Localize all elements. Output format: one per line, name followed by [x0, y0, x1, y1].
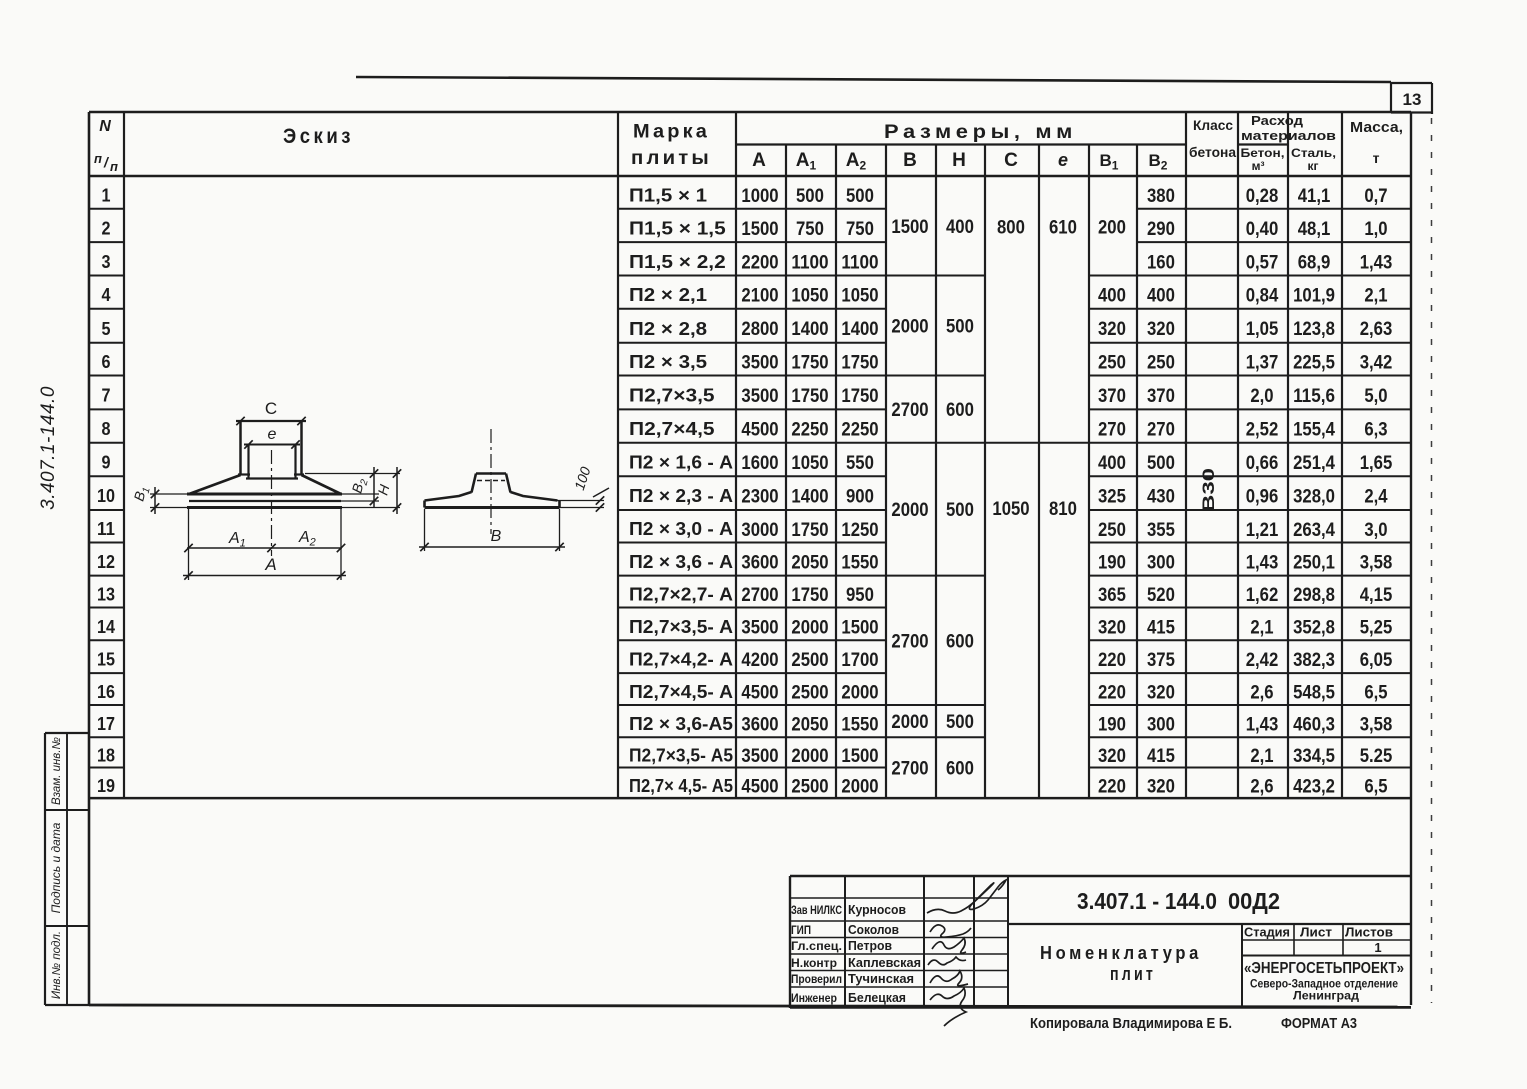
svg-text:550: 550: [846, 453, 874, 474]
svg-text:П1,5 × 1: П1,5 × 1: [629, 185, 707, 205]
svg-text:Соколов: Соколов: [848, 923, 899, 937]
svg-text:220: 220: [1098, 683, 1126, 704]
svg-text:400: 400: [1098, 286, 1126, 307]
svg-text:13: 13: [1403, 90, 1422, 109]
svg-text:600: 600: [946, 631, 974, 652]
svg-text:200: 200: [1098, 217, 1126, 238]
svg-text:950: 950: [846, 585, 874, 606]
svg-text:В: В: [903, 150, 917, 171]
svg-text:Подпись и дата: Подпись и дата: [49, 822, 63, 913]
svg-text:Зав НИЛКС: Зав НИЛКС: [791, 905, 842, 917]
svg-text:1,05: 1,05: [1246, 319, 1279, 340]
svg-text:400: 400: [946, 217, 974, 238]
svg-text:Копировала Владимирова Е Б.: Копировала Владимирова Е Б.: [1030, 1016, 1232, 1032]
svg-text:П2 × 3,0 - А: П2 × 3,0 - А: [629, 519, 733, 539]
svg-text:6,5: 6,5: [1364, 683, 1388, 704]
svg-text:1550: 1550: [841, 715, 878, 736]
svg-text:1050: 1050: [992, 499, 1029, 520]
svg-text:0,66: 0,66: [1246, 453, 1279, 474]
svg-text:400: 400: [1098, 453, 1126, 474]
svg-text:Взам. инв.№: Взам. инв.№: [51, 736, 63, 804]
svg-text:380: 380: [1147, 186, 1175, 207]
svg-text:2100: 2100: [741, 286, 778, 307]
svg-text:2000: 2000: [891, 712, 928, 733]
svg-text:382,3: 382,3: [1293, 650, 1335, 671]
svg-text:2800: 2800: [741, 319, 778, 340]
svg-text:68,9: 68,9: [1298, 252, 1331, 273]
svg-text:п: п: [110, 159, 118, 174]
svg-text:600: 600: [946, 759, 974, 780]
svg-text:320: 320: [1098, 319, 1126, 340]
svg-text:2,42: 2,42: [1246, 650, 1279, 671]
svg-text:Класс: Класс: [1193, 117, 1233, 133]
svg-text:5,0: 5,0: [1364, 386, 1387, 407]
svg-text:«ЭНЕРГОСЕТЬПРОЕКТ»: «ЭНЕРГОСЕТЬПРОЕКТ»: [1244, 960, 1404, 977]
svg-text:2700: 2700: [891, 400, 928, 421]
svg-text:750: 750: [846, 219, 874, 240]
svg-text:1000: 1000: [741, 186, 778, 207]
svg-text:1750: 1750: [841, 386, 878, 407]
svg-text:123,8: 123,8: [1293, 319, 1335, 340]
svg-text:Гл.спец.: Гл.спец.: [791, 941, 842, 953]
svg-text:320: 320: [1098, 746, 1126, 767]
svg-text:А: А: [752, 150, 766, 171]
svg-text:500: 500: [1147, 453, 1175, 474]
svg-text:1400: 1400: [841, 319, 878, 340]
svg-text:2000: 2000: [841, 776, 878, 797]
svg-text:3500: 3500: [741, 617, 778, 638]
svg-text:1250: 1250: [841, 520, 878, 541]
svg-text:ФОРМАТ А3: ФОРМАТ А3: [1281, 1016, 1357, 1032]
svg-text:материалов: материалов: [1241, 129, 1336, 143]
svg-text:2,52: 2,52: [1246, 420, 1279, 441]
svg-text:2,1: 2,1: [1250, 617, 1274, 638]
svg-text:4500: 4500: [741, 420, 778, 441]
svg-text:В30: В30: [1199, 468, 1218, 512]
svg-text:460,3: 460,3: [1293, 715, 1335, 736]
svg-text:П2,7×3,5: П2,7×3,5: [629, 385, 715, 405]
svg-text:N: N: [99, 118, 111, 135]
svg-text:3500: 3500: [741, 386, 778, 407]
svg-text:1750: 1750: [791, 520, 828, 541]
svg-text:320: 320: [1147, 683, 1175, 704]
svg-text:328,0: 328,0: [1293, 487, 1335, 508]
svg-text:190: 190: [1098, 553, 1126, 574]
svg-text:220: 220: [1098, 776, 1126, 797]
svg-text:2050: 2050: [791, 553, 828, 574]
svg-text:3.407.1 - 144.0: 3.407.1 - 144.0: [1077, 888, 1217, 914]
svg-text:8: 8: [102, 419, 111, 439]
svg-text:1600: 1600: [741, 453, 778, 474]
svg-text:500: 500: [846, 186, 874, 207]
svg-text:00Д2: 00Д2: [1228, 888, 1280, 914]
svg-text:548,5: 548,5: [1293, 683, 1335, 704]
svg-text:4500: 4500: [741, 683, 778, 704]
svg-text:320: 320: [1147, 319, 1175, 340]
svg-text:500: 500: [796, 186, 824, 207]
svg-text:П2 × 2,8: П2 × 2,8: [629, 319, 707, 339]
svg-text:160: 160: [1147, 252, 1175, 273]
svg-text:бетона: бетона: [1189, 144, 1236, 160]
svg-text:430: 430: [1147, 487, 1175, 508]
svg-text:0,7: 0,7: [1364, 186, 1387, 207]
svg-text:П2 × 1,6 - А: П2 × 1,6 - А: [629, 453, 733, 473]
svg-text:12: 12: [97, 552, 115, 572]
svg-text:4,15: 4,15: [1360, 585, 1393, 606]
svg-text:Стадия: Стадия: [1244, 925, 1290, 940]
svg-text:1400: 1400: [791, 319, 828, 340]
svg-text:0,57: 0,57: [1246, 252, 1279, 273]
svg-text:500: 500: [946, 500, 974, 521]
svg-text:П2,7×3,5- А: П2,7×3,5- А: [629, 617, 733, 637]
svg-text:Листов: Листов: [1345, 925, 1393, 940]
svg-text:610: 610: [1049, 217, 1077, 238]
svg-text:500: 500: [946, 712, 974, 733]
svg-text:1750: 1750: [791, 585, 828, 606]
svg-text:Лист: Лист: [1300, 925, 1332, 940]
svg-text:Ленинград: Ленинград: [1293, 991, 1360, 1003]
svg-text:Каплевская: Каплевская: [848, 956, 921, 970]
svg-text:370: 370: [1098, 386, 1126, 407]
svg-text:м³: м³: [1252, 159, 1265, 173]
svg-text:плиты: плиты: [631, 148, 712, 169]
svg-text:1750: 1750: [841, 353, 878, 374]
svg-text:15: 15: [97, 650, 115, 670]
svg-text:е: е: [268, 426, 277, 443]
svg-text:3.407.1-144.0: 3.407.1-144.0: [38, 386, 59, 510]
svg-text:355: 355: [1147, 520, 1175, 541]
svg-text:С: С: [265, 399, 277, 418]
svg-text:Масса,: Масса,: [1350, 119, 1403, 136]
svg-text:3000: 3000: [741, 520, 778, 541]
svg-text:3,58: 3,58: [1360, 553, 1393, 574]
svg-text:0,96: 0,96: [1246, 487, 1279, 508]
svg-text:6,3: 6,3: [1364, 420, 1387, 441]
svg-text:6,5: 6,5: [1364, 776, 1388, 797]
svg-text:5: 5: [102, 319, 111, 339]
svg-text:П1,5 × 2,2: П1,5 × 2,2: [629, 252, 726, 272]
svg-text:0,84: 0,84: [1246, 286, 1279, 307]
svg-text:750: 750: [796, 219, 824, 240]
svg-text:2,4: 2,4: [1364, 487, 1388, 508]
svg-text:300: 300: [1147, 715, 1175, 736]
svg-text:ГИП: ГИП: [791, 925, 811, 937]
svg-text:18: 18: [97, 745, 115, 765]
svg-text:810: 810: [1049, 499, 1077, 520]
svg-text:Марка: Марка: [633, 122, 710, 143]
svg-text:250: 250: [1098, 520, 1126, 541]
svg-text:423,2: 423,2: [1293, 776, 1335, 797]
svg-text:41,1: 41,1: [1298, 186, 1331, 207]
svg-text:270: 270: [1098, 420, 1126, 441]
svg-text:Петров: Петров: [848, 939, 892, 953]
svg-text:370: 370: [1147, 386, 1175, 407]
svg-text:1550: 1550: [841, 553, 878, 574]
svg-text:415: 415: [1147, 617, 1175, 638]
svg-text:4: 4: [102, 285, 111, 305]
svg-text:155,4: 155,4: [1293, 420, 1335, 441]
svg-text:6,05: 6,05: [1360, 650, 1393, 671]
svg-text:500: 500: [946, 317, 974, 338]
svg-text:Инженер: Инженер: [791, 993, 837, 1005]
svg-text:365: 365: [1098, 585, 1126, 606]
svg-text:0,40: 0,40: [1246, 219, 1279, 240]
svg-text:1050: 1050: [841, 286, 878, 307]
svg-text:В: В: [491, 528, 502, 545]
svg-text:2,0: 2,0: [1250, 386, 1273, 407]
svg-text:250,1: 250,1: [1293, 553, 1335, 574]
svg-text:325: 325: [1098, 487, 1126, 508]
svg-text:2250: 2250: [841, 420, 878, 441]
svg-text:А: А: [264, 555, 276, 574]
svg-text:2,1: 2,1: [1364, 286, 1388, 307]
svg-text:2000: 2000: [791, 617, 828, 638]
svg-text:5.25: 5.25: [1360, 746, 1393, 767]
svg-text:1,62: 1,62: [1246, 585, 1279, 606]
svg-text:Эскиз: Эскиз: [283, 125, 354, 148]
svg-text:1750: 1750: [791, 353, 828, 374]
svg-text:2000: 2000: [891, 500, 928, 521]
svg-text:Н.контр: Н.контр: [791, 958, 837, 970]
svg-text:190: 190: [1098, 715, 1126, 736]
svg-text:48,1: 48,1: [1298, 219, 1331, 240]
svg-text:2,6: 2,6: [1250, 683, 1273, 704]
svg-text:Тучинская: Тучинская: [848, 972, 914, 986]
svg-text:225,5: 225,5: [1293, 353, 1335, 374]
svg-text:Сталь,: Сталь,: [1291, 146, 1336, 160]
svg-text:415: 415: [1147, 746, 1175, 767]
svg-text:1,43: 1,43: [1360, 252, 1393, 273]
svg-text:кг: кг: [1307, 159, 1318, 173]
svg-text:10: 10: [97, 486, 115, 506]
svg-text:4500: 4500: [741, 776, 778, 797]
svg-text:11: 11: [97, 519, 115, 539]
svg-text:С: С: [1004, 150, 1018, 171]
svg-text:352,8: 352,8: [1293, 617, 1335, 638]
svg-text:320: 320: [1098, 617, 1126, 638]
svg-text:2000: 2000: [841, 683, 878, 704]
svg-text:2,1: 2,1: [1250, 746, 1274, 767]
svg-text:1100: 1100: [841, 252, 878, 273]
svg-text:1500: 1500: [891, 217, 928, 238]
svg-text:2,63: 2,63: [1360, 319, 1393, 340]
svg-text:19: 19: [97, 776, 115, 796]
svg-text:Инв.№ подл.: Инв.№ подл.: [51, 931, 63, 999]
svg-text:3500: 3500: [741, 746, 778, 767]
svg-text:220: 220: [1098, 650, 1126, 671]
svg-text:2500: 2500: [791, 650, 828, 671]
svg-text:1700: 1700: [841, 650, 878, 671]
svg-text:270: 270: [1147, 420, 1175, 441]
svg-text:3,58: 3,58: [1360, 715, 1393, 736]
svg-text:Проверил: Проверил: [791, 974, 842, 986]
svg-text:1: 1: [102, 185, 111, 205]
svg-text:520: 520: [1147, 585, 1175, 606]
svg-text:300: 300: [1147, 553, 1175, 574]
svg-text:3,0: 3,0: [1364, 520, 1387, 541]
svg-text:П2 × 3,6 - А: П2 × 3,6 - А: [629, 552, 733, 572]
svg-text:4200: 4200: [741, 650, 778, 671]
svg-text:320: 320: [1147, 776, 1175, 797]
svg-text:1,43: 1,43: [1246, 715, 1279, 736]
svg-text:1400: 1400: [791, 487, 828, 508]
svg-text:е: е: [1058, 150, 1068, 170]
svg-text:600: 600: [946, 400, 974, 421]
svg-text:1,37: 1,37: [1246, 353, 1279, 374]
svg-text:3,42: 3,42: [1360, 353, 1393, 374]
svg-text:2300: 2300: [741, 487, 778, 508]
svg-text:1050: 1050: [791, 453, 828, 474]
svg-text:П2,7× 4,5- А5: П2,7× 4,5- А5: [629, 776, 733, 796]
svg-text:3500: 3500: [741, 353, 778, 374]
svg-text:Северо-Западное отделение: Северо-Западное отделение: [1250, 979, 1398, 991]
svg-text:900: 900: [846, 487, 874, 508]
svg-text:400: 400: [1147, 286, 1175, 307]
svg-text:Н: Н: [952, 150, 966, 171]
svg-text:Размеры, мм: Размеры, мм: [884, 122, 1077, 143]
svg-text:2500: 2500: [791, 683, 828, 704]
svg-text:П1,5 × 1,5: П1,5 × 1,5: [629, 218, 726, 238]
svg-text:334,5: 334,5: [1293, 746, 1335, 767]
svg-text:П2,7×4,5: П2,7×4,5: [629, 419, 715, 439]
svg-text:375: 375: [1147, 650, 1175, 671]
svg-text:290: 290: [1147, 219, 1175, 240]
svg-text:5,25: 5,25: [1360, 617, 1393, 638]
svg-text:1,43: 1,43: [1246, 553, 1279, 574]
svg-text:263,4: 263,4: [1293, 520, 1335, 541]
svg-text:1500: 1500: [841, 746, 878, 767]
svg-text:2700: 2700: [891, 631, 928, 652]
svg-text:1500: 1500: [741, 219, 778, 240]
svg-text:п: п: [94, 151, 102, 166]
svg-text:115,6: 115,6: [1293, 386, 1335, 407]
svg-text:П2,7×2,7- А: П2,7×2,7- А: [629, 585, 733, 605]
svg-text:2050: 2050: [791, 715, 828, 736]
svg-text:9: 9: [102, 453, 111, 473]
svg-text:1,21: 1,21: [1246, 520, 1279, 541]
svg-text:2700: 2700: [741, 585, 778, 606]
svg-text:251,4: 251,4: [1293, 453, 1335, 474]
svg-text:Номенклатура: Номенклатура: [1040, 943, 1202, 963]
svg-text:2000: 2000: [791, 746, 828, 767]
svg-text:П2,7×3,5- А5: П2,7×3,5- А5: [629, 745, 733, 765]
svg-text:1500: 1500: [841, 617, 878, 638]
svg-text:Расход: Расход: [1251, 114, 1303, 128]
svg-text:2250: 2250: [791, 420, 828, 441]
svg-text:14: 14: [97, 617, 115, 637]
svg-text:2200: 2200: [741, 252, 778, 273]
svg-text:3600: 3600: [741, 715, 778, 736]
svg-text:Курносов: Курносов: [848, 903, 906, 917]
svg-text:0,28: 0,28: [1246, 186, 1279, 207]
svg-text:7: 7: [102, 385, 111, 405]
svg-text:800: 800: [997, 217, 1025, 238]
svg-text:298,8: 298,8: [1293, 585, 1335, 606]
svg-text:250: 250: [1147, 353, 1175, 374]
svg-text:Белецкая: Белецкая: [848, 991, 906, 1005]
svg-text:П2 × 3,5: П2 × 3,5: [629, 352, 707, 372]
svg-text:1750: 1750: [791, 386, 828, 407]
svg-text:2,6: 2,6: [1250, 776, 1273, 797]
svg-text:2: 2: [102, 218, 111, 238]
svg-text:1: 1: [1374, 940, 1381, 955]
svg-text:1100: 1100: [791, 252, 828, 273]
svg-text:1,65: 1,65: [1360, 453, 1393, 474]
svg-text:2700: 2700: [891, 759, 928, 780]
svg-text:П2,7×4,5- А: П2,7×4,5- А: [629, 682, 733, 702]
svg-text:П2 × 2,1: П2 × 2,1: [629, 285, 707, 305]
svg-text:13: 13: [97, 585, 115, 605]
svg-text:16: 16: [97, 682, 115, 702]
svg-text:3600: 3600: [741, 553, 778, 574]
svg-text:П2 × 2,3 - А: П2 × 2,3 - А: [629, 486, 733, 506]
svg-text:3: 3: [102, 252, 111, 272]
svg-text:П2,7×4,2- А: П2,7×4,2- А: [629, 650, 733, 670]
svg-text:17: 17: [97, 714, 115, 734]
svg-text:1050: 1050: [791, 286, 828, 307]
svg-text:6: 6: [102, 352, 111, 372]
svg-text:плит: плит: [1110, 964, 1156, 984]
svg-text:т: т: [1373, 150, 1380, 166]
svg-text:Бетон,: Бетон,: [1241, 146, 1285, 160]
svg-text:1,0: 1,0: [1364, 219, 1387, 240]
svg-text:101,9: 101,9: [1293, 286, 1335, 307]
svg-text:2000: 2000: [891, 317, 928, 338]
svg-text:250: 250: [1098, 353, 1126, 374]
svg-text:П2 × 3,6-А5: П2 × 3,6-А5: [629, 714, 733, 734]
svg-text:2500: 2500: [791, 776, 828, 797]
